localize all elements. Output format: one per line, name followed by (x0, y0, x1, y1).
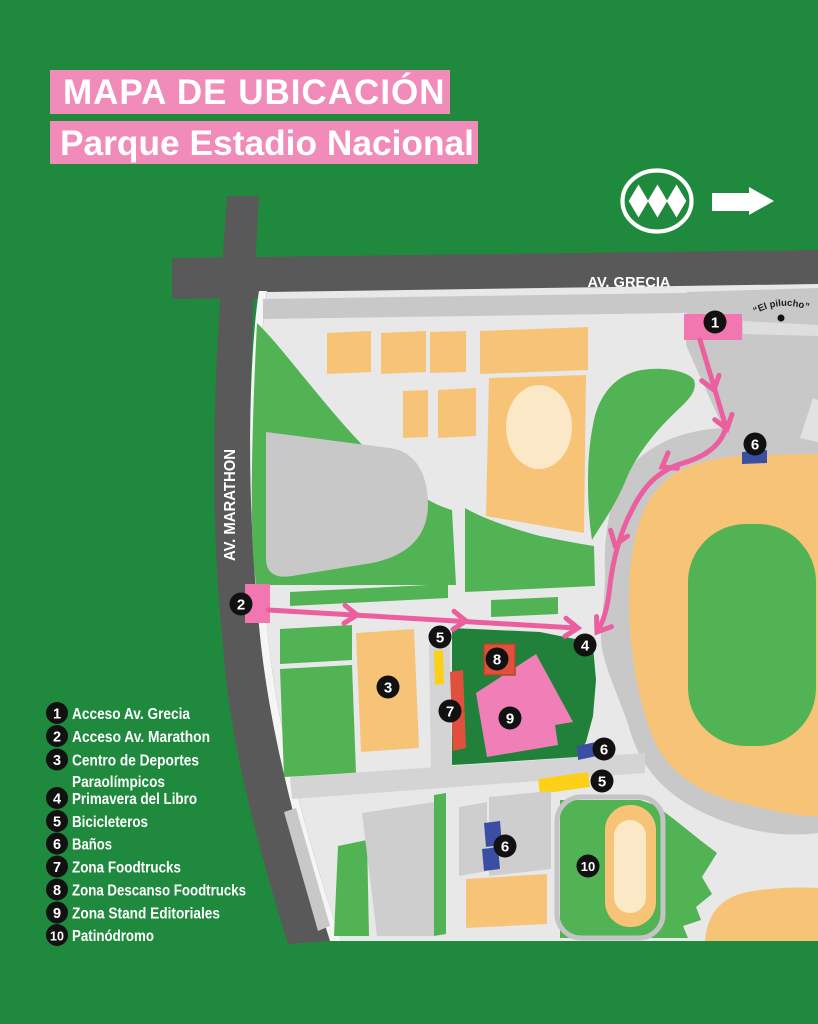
svg-text:Bicicleteros: Bicicleteros (72, 814, 148, 831)
svg-text:8: 8 (53, 883, 61, 899)
svg-text:2: 2 (53, 730, 61, 746)
svg-text:5: 5 (598, 774, 606, 791)
svg-text:9: 9 (506, 711, 514, 728)
svg-text:Zona Descanso Foodtrucks: Zona Descanso Foodtrucks (72, 883, 246, 900)
svg-text:10: 10 (50, 930, 64, 944)
svg-text:MAPA DE UBICACIÓN: MAPA DE UBICACIÓN (63, 72, 446, 112)
svg-text:2: 2 (237, 597, 245, 614)
svg-text:6: 6 (600, 742, 608, 759)
svg-text:9: 9 (53, 906, 61, 922)
svg-text:3: 3 (53, 753, 61, 769)
svg-text:Centro de Deportes: Centro de Deportes (72, 753, 199, 770)
svg-text:5: 5 (53, 815, 61, 831)
svg-text:4: 4 (581, 638, 590, 655)
svg-text:6: 6 (751, 437, 759, 454)
svg-text:Patinódromo: Patinódromo (72, 928, 154, 945)
svg-text:5: 5 (436, 630, 444, 647)
svg-text:Zona Stand Editoriales: Zona Stand Editoriales (72, 906, 220, 923)
svg-text:Baños: Baños (72, 837, 112, 854)
svg-text:4: 4 (53, 792, 61, 808)
svg-text:8: 8 (493, 652, 501, 669)
svg-text:7: 7 (53, 860, 61, 876)
svg-text:7: 7 (446, 704, 454, 721)
svg-text:10: 10 (581, 859, 595, 874)
svg-text:3: 3 (384, 680, 392, 697)
svg-text:Paraolímpicos: Paraolímpicos (72, 774, 165, 791)
svg-text:1: 1 (711, 315, 719, 332)
svg-text:Parque Estadio Nacional: Parque Estadio Nacional (60, 124, 474, 163)
svg-text:1: 1 (53, 707, 61, 723)
svg-text:6: 6 (53, 837, 61, 853)
svg-text:6: 6 (501, 839, 509, 856)
svg-text:Acceso Av. Marathon: Acceso Av. Marathon (72, 729, 210, 746)
svg-text:AV. GRECIA: AV. GRECIA (588, 275, 672, 291)
svg-text:AV. MARATHON: AV. MARATHON (222, 449, 239, 561)
svg-text:Acceso Av. Grecia: Acceso Av. Grecia (72, 706, 190, 723)
svg-text:Primavera del Libro: Primavera del Libro (72, 791, 197, 808)
svg-text:Zona Foodtrucks: Zona Foodtrucks (72, 860, 181, 877)
